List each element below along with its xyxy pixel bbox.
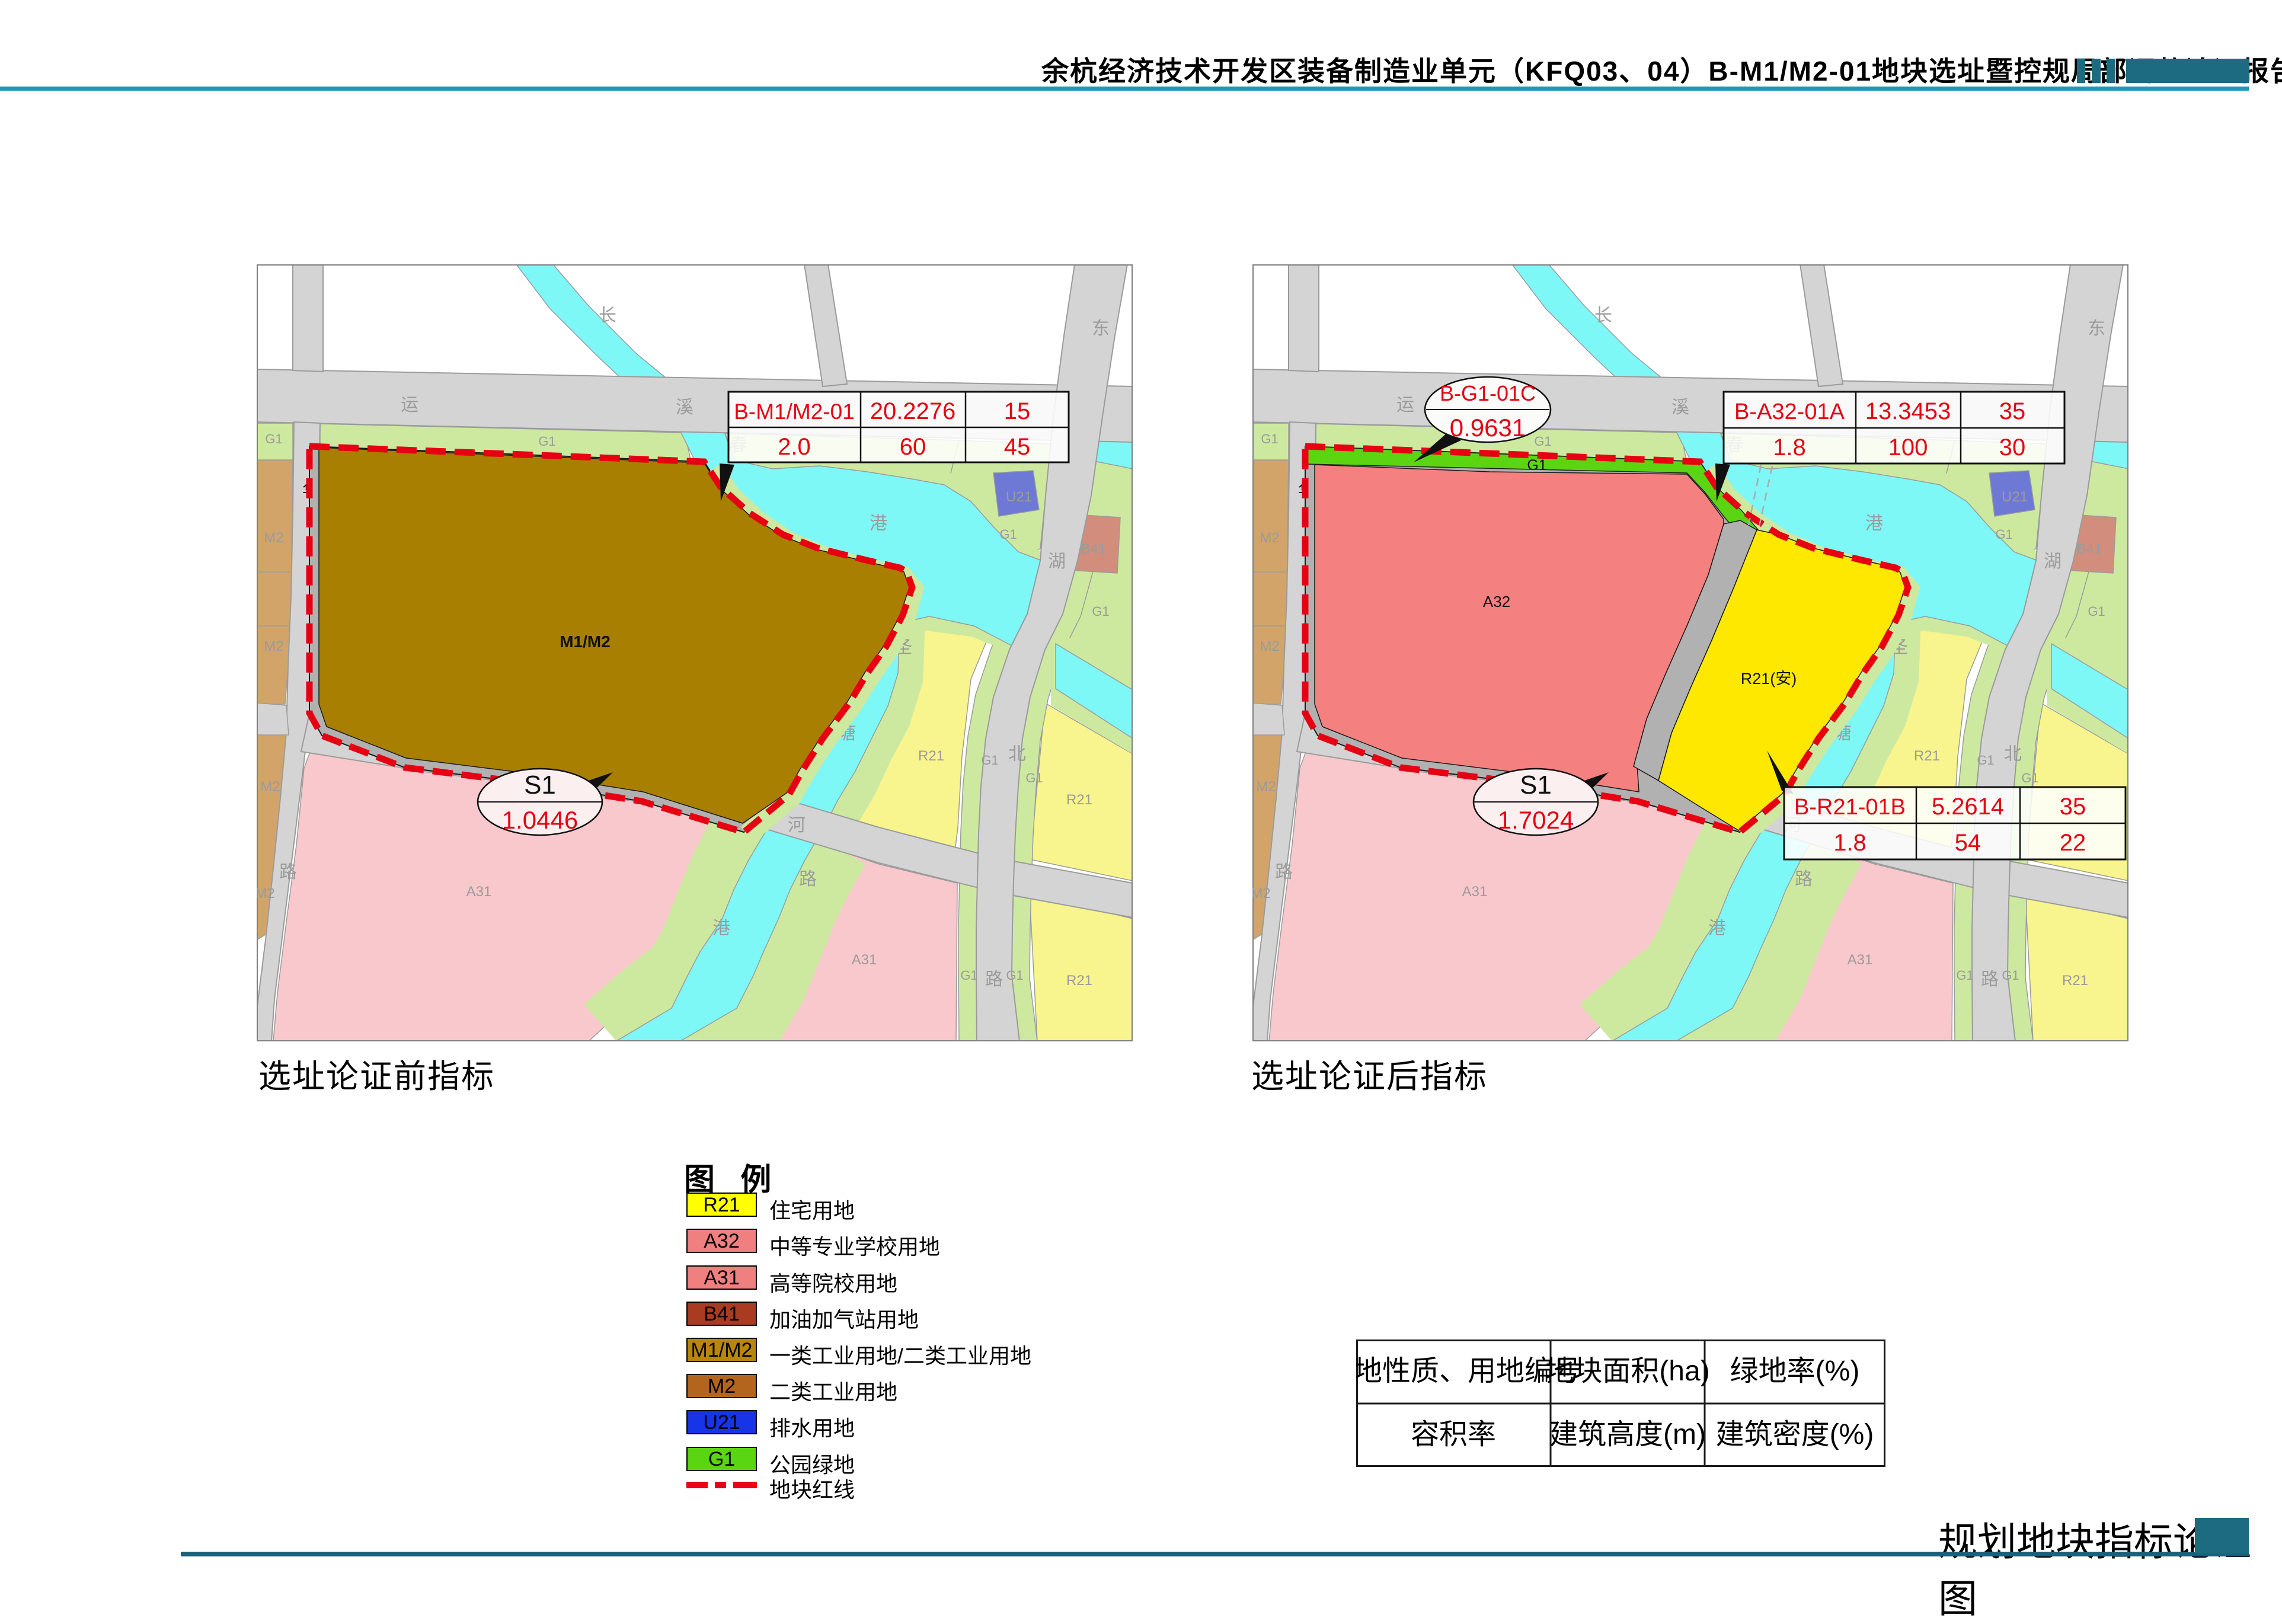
svg-text:G1: G1 [1025,771,1043,785]
svg-text:2.0: 2.0 [778,434,811,460]
svg-text:60: 60 [900,434,926,460]
svg-text:B-G1-01C: B-G1-01C [1440,381,1536,405]
svg-text:15: 15 [1004,398,1031,424]
svg-text:M1/M2: M1/M2 [560,632,611,651]
svg-text:B41: B41 [1081,541,1107,557]
svg-text:港: 港 [712,919,730,938]
svg-text:湖: 湖 [1048,552,1066,571]
svg-text:13.3453: 13.3453 [1865,398,1951,424]
svg-text:R21(安): R21(安) [1741,670,1797,688]
svg-text:长: 长 [599,306,616,325]
svg-text:30: 30 [1999,434,2026,461]
svg-text:容积率: 容积率 [1411,1419,1496,1450]
svg-text:1.0446: 1.0446 [502,806,578,834]
svg-text:东: 东 [1092,319,1110,338]
svg-text:M2: M2 [264,638,283,654]
svg-text:100: 100 [1888,434,1928,461]
svg-text:G1: G1 [981,753,998,768]
svg-text:1.8: 1.8 [1773,434,1806,461]
svg-text:B-R21-01B: B-R21-01B [1794,795,1906,820]
svg-text:22: 22 [2060,830,2086,856]
svg-text:R21: R21 [918,748,944,764]
svg-text:45: 45 [1004,434,1031,460]
svg-text:G1: G1 [538,434,555,449]
svg-text:建筑密度(%): 建筑密度(%) [1716,1419,1874,1450]
svg-text:G1: G1 [1092,604,1109,619]
svg-text:建筑高度(m): 建筑高度(m) [1549,1419,1706,1450]
svg-text:北: 北 [1008,744,1026,764]
svg-text:35: 35 [1999,398,2026,424]
svg-text:路: 路 [279,862,297,882]
svg-text:M2: M2 [257,885,275,901]
svg-text:港: 港 [870,514,887,533]
svg-text:20.2276: 20.2276 [870,398,956,424]
svg-text:5.2614: 5.2614 [1932,794,2004,820]
svg-text:S1: S1 [1520,771,1552,800]
svg-text:G1: G1 [960,968,977,983]
svg-text:54: 54 [1955,830,1981,856]
svg-text:U21: U21 [1006,489,1032,505]
svg-text:1.7024: 1.7024 [1498,806,1574,834]
svg-text:G1: G1 [265,431,282,446]
svg-text:河: 河 [788,816,806,835]
svg-text:B-M1/M2-01: B-M1/M2-01 [734,399,855,424]
svg-text:绿地率(%): 绿地率(%) [1730,1356,1860,1387]
svg-text:溪: 溪 [676,398,693,417]
svg-text:M2: M2 [260,779,280,795]
svg-text:1.8: 1.8 [1833,830,1866,856]
svg-text:S1: S1 [524,771,556,800]
svg-text:G1: G1 [1527,457,1546,474]
svg-text:0.9631: 0.9631 [1450,414,1526,442]
svg-text:R21: R21 [1066,792,1092,808]
svg-text:路: 路 [799,869,817,889]
svg-text:A31: A31 [852,952,877,968]
svg-text:A31: A31 [466,884,492,900]
svg-text:B-A32-01A: B-A32-01A [1734,399,1845,424]
svg-text:G1: G1 [999,527,1017,542]
svg-text:A32: A32 [1483,593,1510,610]
svg-text:G1: G1 [1006,968,1023,983]
svg-text:地块面积(ha): 地块面积(ha) [1545,1356,1709,1387]
svg-text:M2: M2 [264,530,283,546]
svg-text:路: 路 [985,970,1003,989]
svg-text:运: 运 [401,395,418,415]
svg-text:35: 35 [2060,794,2086,820]
svg-text:R21: R21 [1066,973,1092,989]
